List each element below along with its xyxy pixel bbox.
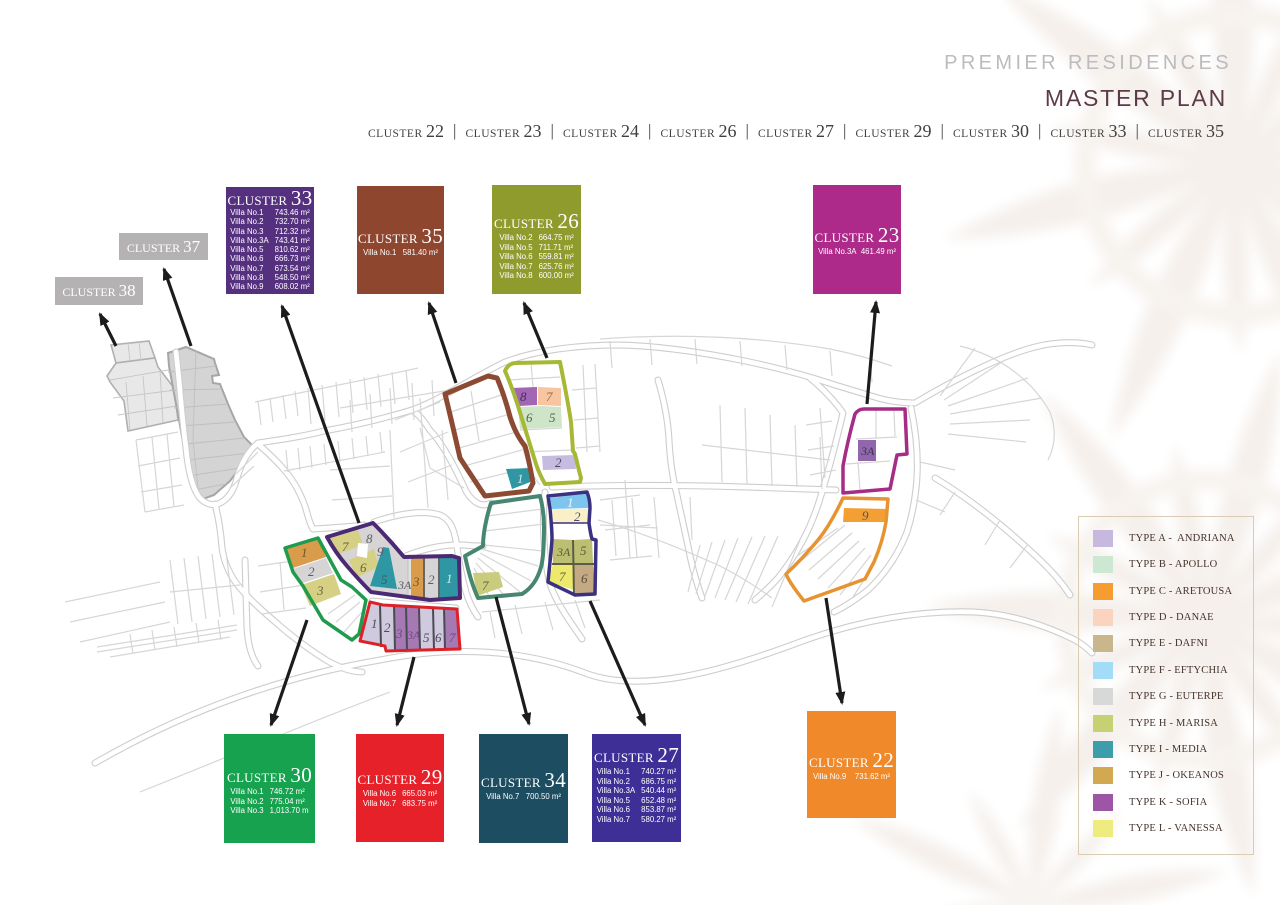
svg-text:7: 7 — [559, 569, 566, 584]
svg-text:8: 8 — [366, 531, 373, 546]
svg-text:8: 8 — [520, 389, 527, 404]
svg-text:7: 7 — [546, 389, 553, 404]
svg-text:7: 7 — [449, 630, 456, 645]
svg-text:3: 3 — [412, 574, 420, 589]
svg-text:6: 6 — [435, 630, 442, 645]
svg-text:5: 5 — [381, 572, 388, 587]
svg-text:2: 2 — [428, 572, 435, 587]
svg-text:6: 6 — [581, 571, 588, 586]
svg-text:5: 5 — [580, 543, 587, 558]
svg-text:3A: 3A — [556, 545, 571, 559]
svg-text:2: 2 — [555, 455, 562, 470]
svg-text:3A: 3A — [406, 628, 421, 642]
svg-text:6: 6 — [526, 410, 533, 425]
svg-text:3A: 3A — [397, 578, 412, 592]
svg-text:1: 1 — [446, 571, 453, 586]
svg-text:3: 3 — [316, 583, 324, 598]
svg-text:5: 5 — [549, 410, 556, 425]
svg-text:2: 2 — [574, 509, 581, 524]
svg-text:2: 2 — [384, 620, 391, 635]
svg-text:2: 2 — [308, 564, 315, 579]
svg-text:3: 3 — [395, 626, 403, 641]
svg-text:7: 7 — [482, 578, 489, 593]
svg-text:6: 6 — [360, 560, 367, 575]
svg-text:1: 1 — [301, 545, 308, 560]
svg-text:3A: 3A — [860, 444, 875, 458]
svg-text:1: 1 — [567, 495, 574, 510]
svg-text:1: 1 — [371, 616, 378, 631]
svg-text:9: 9 — [377, 544, 384, 559]
svg-text:9: 9 — [862, 508, 869, 523]
svg-text:1: 1 — [517, 471, 524, 486]
svg-text:5: 5 — [423, 630, 430, 645]
svg-text:7: 7 — [342, 539, 349, 554]
